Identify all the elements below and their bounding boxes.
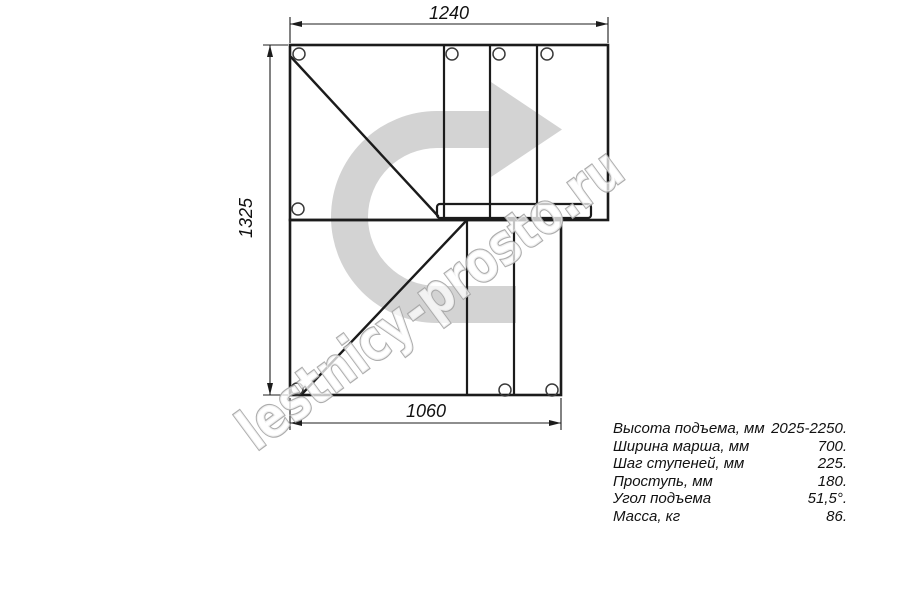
specs-table: Высота подъема, мм 2025-2250. Ширина мар… xyxy=(613,420,847,526)
dim-arrowhead xyxy=(290,21,302,27)
dim-arrowhead xyxy=(549,420,561,426)
spec-value: 225. xyxy=(818,455,847,473)
dimension-bottom-value: 1060 xyxy=(406,401,446,421)
spec-label: Угол подъема xyxy=(613,490,711,508)
spec-row-angle: Угол подъема 51,5°. xyxy=(613,490,847,508)
spec-value: 51,5°. xyxy=(808,490,847,508)
spec-row-step-pitch: Шаг ступеней, мм 225. xyxy=(613,455,847,473)
dim-arrowhead xyxy=(596,21,608,27)
dimension-top: 1240 xyxy=(290,3,608,43)
spec-row-mass: Масса, кг 86. xyxy=(613,508,847,526)
dimension-left: 1325 xyxy=(236,45,288,395)
spec-value: 700. xyxy=(818,438,847,456)
spec-label: Ширина марша, мм xyxy=(613,438,749,456)
drawing-canvas: 1240 1325 1060 lestnicy-prosto.ru Высота… xyxy=(0,0,900,600)
dim-arrowhead xyxy=(267,45,273,57)
mount-hole xyxy=(292,203,304,215)
mount-hole xyxy=(493,48,505,60)
spec-label: Проступь, мм xyxy=(613,473,713,491)
spec-label: Масса, кг xyxy=(613,508,680,526)
spec-value: 2025-2250. xyxy=(771,420,847,438)
mount-hole xyxy=(446,48,458,60)
mount-hole xyxy=(293,48,305,60)
dimension-top-value: 1240 xyxy=(429,3,469,23)
dimension-left-value: 1325 xyxy=(236,197,256,238)
spec-row-flight-width: Ширина марша, мм 700. xyxy=(613,438,847,456)
spec-label: Высота подъема, мм xyxy=(613,420,765,438)
mount-hole xyxy=(541,48,553,60)
spec-row-height: Высота подъема, мм 2025-2250. xyxy=(613,420,847,438)
spec-value: 86. xyxy=(826,508,847,526)
spec-row-tread: Проступь, мм 180. xyxy=(613,473,847,491)
spec-value: 180. xyxy=(818,473,847,491)
spec-label: Шаг ступеней, мм xyxy=(613,455,744,473)
